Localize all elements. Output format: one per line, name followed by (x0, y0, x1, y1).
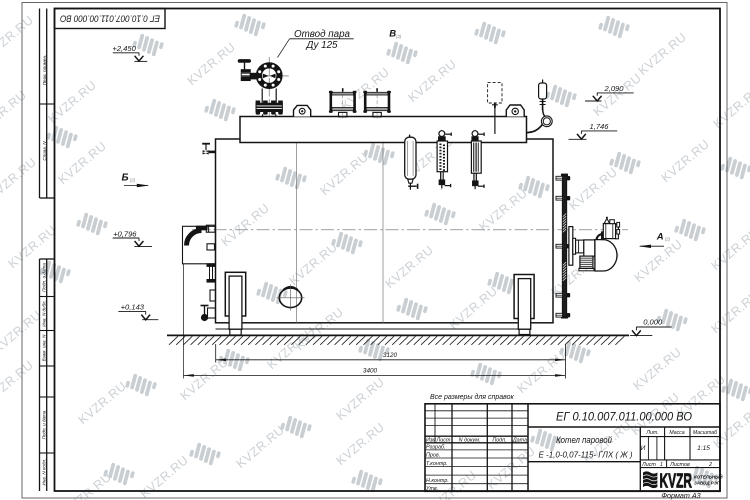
svg-text:KVZR.RU: KVZR.RU (0, 155, 39, 203)
svg-text:1:15: 1:15 (697, 445, 710, 452)
svg-text:Лит.: Лит. (645, 430, 658, 436)
svg-text:Справ. N: Справ. N (42, 141, 47, 161)
svg-text:Пров.: Пров. (426, 453, 440, 459)
svg-text:Подп. и дата: Подп. и дата (42, 263, 47, 292)
svg-text:1: 1 (660, 462, 663, 468)
svg-text:KVZR.RU: KVZR.RU (406, 57, 460, 105)
svg-text:Подп.: Подп. (492, 437, 506, 443)
svg-text:+0,796: +0,796 (113, 229, 137, 238)
svg-text:2,090: 2,090 (604, 84, 625, 93)
svg-text:KVZR.RU: KVZR.RU (477, 186, 531, 234)
svg-text:Котел паровой: Котел паровой (556, 435, 612, 445)
svg-text:Утв.: Утв. (425, 486, 438, 492)
svg-text:KVZR.RU: KVZR.RU (178, 355, 232, 403)
svg-text:Взам. инв. N: Взам. инв. N (42, 334, 47, 361)
svg-text:Масштаб: Масштаб (693, 430, 718, 436)
svg-text:(2): (2) (396, 34, 402, 39)
svg-text:+0,143: +0,143 (121, 302, 145, 311)
svg-text:KVZR.RU: KVZR.RU (138, 453, 192, 500)
svg-text:KVZR.RU: KVZR.RU (185, 40, 239, 88)
svg-text:KVZR.RU: KVZR.RU (56, 139, 110, 187)
svg-text:Дата: Дата (512, 437, 527, 443)
svg-text:KVZR.RU: KVZR.RU (549, 251, 603, 299)
svg-text:KVZR.RU: KVZR.RU (6, 223, 60, 271)
svg-text:KVZR.RU: KVZR.RU (709, 225, 750, 273)
svg-text:KVZR.RU: KVZR.RU (515, 348, 569, 396)
svg-text:Лист: Лист (436, 437, 451, 443)
svg-text:KVZR.RU: KVZR.RU (591, 71, 645, 119)
svg-text:KVZR.RU: KVZR.RU (631, 345, 685, 393)
svg-text:KVZR.RU: KVZR.RU (659, 137, 713, 185)
svg-text:N докум.: N докум. (459, 437, 481, 443)
svg-text:ЕГ 0.10.007.011.00.000 ВО: ЕГ 0.10.007.011.00.000 ВО (556, 410, 692, 424)
svg-text:KVZR.RU: KVZR.RU (334, 420, 388, 468)
svg-text:Отвод пара: Отвод пара (294, 29, 351, 40)
svg-text:KVZR.RU: KVZR.RU (61, 470, 115, 500)
svg-text:3400: 3400 (363, 367, 378, 374)
svg-text:И: И (641, 445, 646, 452)
svg-text:KVZR.RU: KVZR.RU (234, 423, 288, 471)
svg-text:KVZR.RU: KVZR.RU (711, 83, 750, 131)
svg-text:Б: Б (122, 172, 129, 183)
svg-text:KVZR.RU: KVZR.RU (383, 243, 437, 291)
svg-text:КОТЕЛЬНЫЙ: КОТЕЛЬНЫЙ (694, 475, 723, 480)
svg-text:Листов: Листов (669, 462, 690, 468)
svg-text:1,746: 1,746 (590, 122, 610, 131)
svg-text:0,000: 0,000 (643, 317, 663, 326)
svg-text:KVZR.RU: KVZR.RU (709, 288, 750, 336)
svg-text:ЗАВОД РЭП: ЗАВОД РЭП (694, 480, 721, 485)
svg-text:(2): (2) (130, 177, 136, 182)
svg-text:Подп. и дата: Подп. и дата (42, 410, 47, 439)
svg-text:KVZR.RU: KVZR.RU (334, 375, 388, 423)
svg-text:Т.контр.: Т.контр. (426, 461, 448, 467)
svg-text:Лист: Лист (641, 462, 656, 468)
svg-text:KVZR.RU: KVZR.RU (76, 379, 130, 427)
svg-text:KVZR.RU: KVZR.RU (636, 30, 690, 78)
svg-text:2: 2 (708, 462, 712, 468)
svg-text:(2): (2) (665, 237, 671, 242)
svg-text:KVZR.RU: KVZR.RU (0, 13, 36, 61)
svg-text:Изм: Изм (426, 437, 436, 443)
svg-text:KVZR.RU: KVZR.RU (632, 237, 686, 285)
svg-text:Все размеры для справок: Все размеры для справок (430, 393, 515, 401)
svg-text:KVZR.RU: KVZR.RU (318, 150, 372, 198)
svg-text:ЕГ 0.10.007.011.00.000 ВО: ЕГ 0.10.007.011.00.000 ВО (60, 13, 160, 23)
svg-text:Разраб.: Разраб. (426, 445, 446, 451)
svg-text:KVZR.RU: KVZR.RU (219, 201, 273, 249)
svg-text:KVZR.RU: KVZR.RU (567, 165, 621, 213)
svg-text:KVZR.RU: KVZR.RU (287, 240, 341, 288)
svg-text:KVZR: KVZR (660, 470, 693, 492)
svg-text:Инв. N подл.: Инв. N подл. (42, 459, 47, 486)
svg-text:KVZR.RU: KVZR.RU (447, 284, 501, 332)
svg-text:Е -1,0-0,07-115- ГЛХ ( Ж ): Е -1,0-0,07-115- ГЛХ ( Ж ) (539, 450, 633, 460)
svg-text:+2,450: +2,450 (112, 44, 136, 53)
svg-text:KVZR.RU: KVZR.RU (0, 358, 36, 406)
svg-text:Масса: Масса (669, 430, 684, 436)
svg-text:3120: 3120 (383, 352, 398, 359)
svg-text:Ду 125: Ду 125 (306, 40, 339, 51)
svg-text:Формат А3: Формат А3 (661, 491, 700, 500)
svg-text:Н.контр.: Н.контр. (426, 478, 449, 484)
svg-text:Инв. N дубл.: Инв. N дубл. (42, 300, 47, 327)
svg-text:KVZR.RU: KVZR.RU (0, 88, 29, 136)
svg-text:А: А (656, 231, 664, 242)
svg-text:Перв. примен.: Перв. примен. (42, 55, 47, 86)
